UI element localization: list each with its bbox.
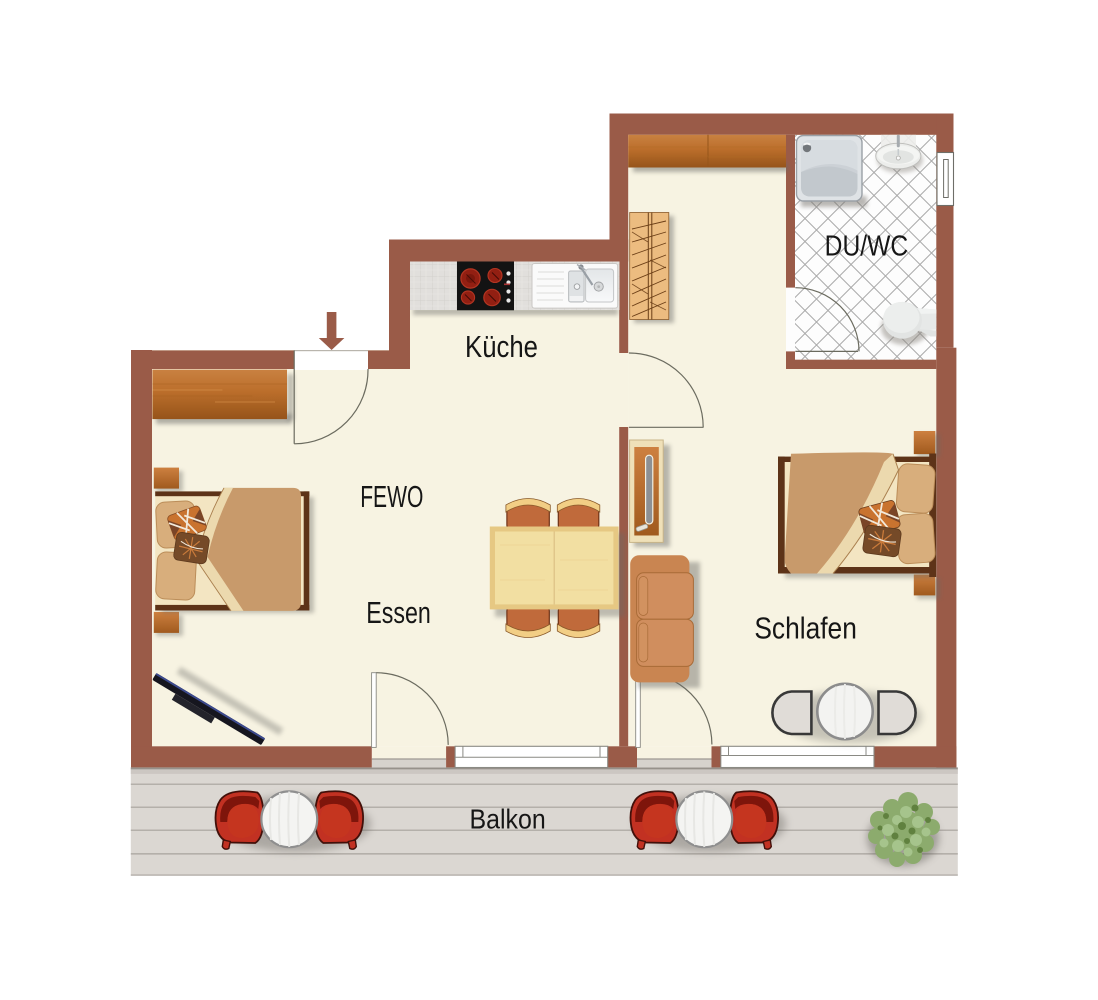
svg-text:FEWO: FEWO	[360, 479, 423, 514]
svg-text:Balkon: Balkon	[470, 803, 546, 835]
svg-text:Schlafen: Schlafen	[754, 612, 856, 646]
svg-text:Küche: Küche	[465, 330, 538, 365]
svg-text:Essen: Essen	[366, 595, 431, 630]
svg-text:DU/WC: DU/WC	[825, 230, 909, 262]
